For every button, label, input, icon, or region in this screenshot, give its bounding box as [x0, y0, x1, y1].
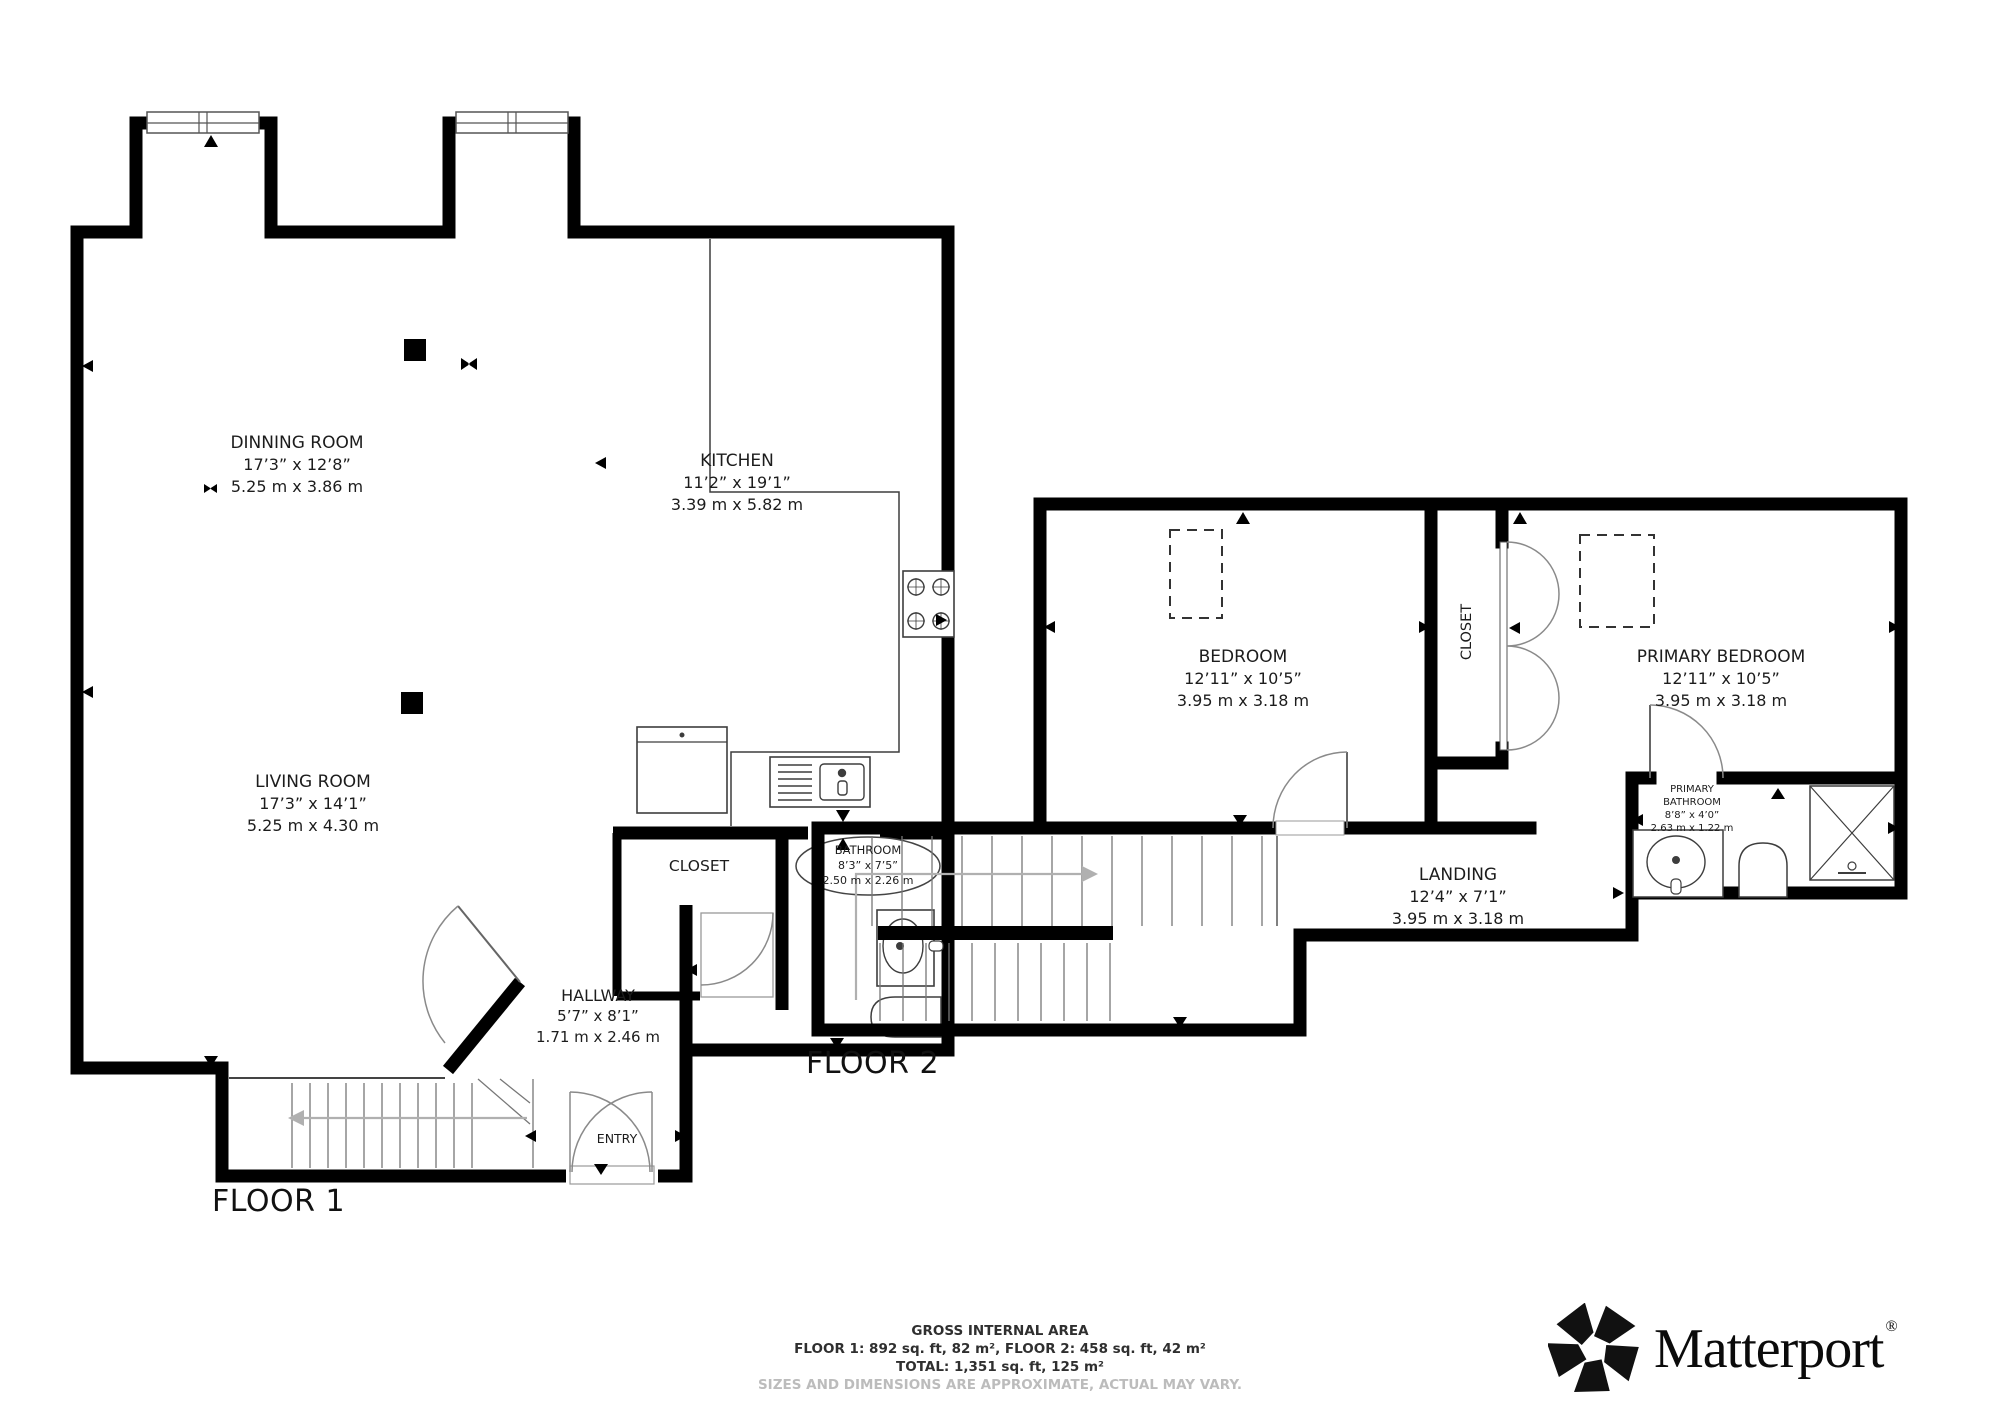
skylight-dashed: [1170, 530, 1222, 618]
camera-marker: [204, 484, 217, 493]
post-icon: [401, 692, 423, 714]
toilet-icon: [1739, 843, 1787, 897]
floor1-title: FLOOR 1: [212, 1184, 345, 1219]
room-label-hallway: HALLWAY 5’7” x 8’1” 1.71 m x 2.46 m: [536, 985, 660, 1048]
gross-internal-area: GROSS INTERNAL AREA FLOOR 1: 892 sq. ft,…: [758, 1322, 1242, 1394]
room-label-closet-floor2: CLOSET: [1459, 604, 1475, 660]
room-label-closet-floor1: CLOSET: [669, 855, 729, 877]
room-label-entry: ENTRY: [597, 1128, 637, 1150]
hallway-door-arc: [423, 906, 520, 1043]
kitchen-sink-icon: [770, 757, 870, 807]
room-label-living-room: LIVING ROOM 17’3” x 14’1” 5.25 m x 4.30 …: [247, 771, 379, 837]
primary-bathroom-door: [1650, 705, 1723, 778]
room-label-dinning-room: DINNING ROOM 17’3” x 12’8” 5.25 m x 3.86…: [230, 432, 363, 498]
closet-bifold-doors: [1500, 542, 1559, 750]
skylight-dashed: [1580, 535, 1654, 627]
footer-title: GROSS INTERNAL AREA: [758, 1322, 1242, 1340]
floor2-plan: [818, 504, 1901, 1030]
stove-icon: [903, 571, 954, 637]
window-bay2: [456, 112, 568, 133]
floor1-stairs: [229, 1078, 533, 1168]
footer-floor-areas: FLOOR 1: 892 sq. ft, 82 m², FLOOR 2: 458…: [758, 1340, 1242, 1358]
camera-marker: [461, 358, 477, 370]
room-label-bathroom: BATHROOM 8’3” x 7’5” 2.50 m x 2.26 m: [823, 843, 914, 888]
fridge-icon: [637, 727, 727, 813]
shower-icon: [1810, 786, 1894, 880]
footer-disclaimer: SIZES AND DIMENSIONS ARE APPROXIMATE, AC…: [758, 1376, 1242, 1394]
stair-rail-wall: [878, 926, 1113, 940]
room-label-primary-bathroom: PRIMARY BATHROOM 8’8” x 4’0” 2.63 m x 1.…: [1651, 783, 1734, 835]
stair-winders: [478, 1079, 533, 1168]
stair-risers: [292, 1083, 472, 1168]
floor2-title: FLOOR 2: [806, 1046, 939, 1081]
matterport-icon: [1548, 1303, 1640, 1395]
stair-direction-arrow: [288, 1110, 527, 1126]
room-label-landing: LANDING 12’4” x 7’1” 3.95 m x 3.18 m: [1392, 864, 1524, 930]
room-label-primary-bedroom: PRIMARY BEDROOM 12’11” x 10’5” 3.95 m x …: [1637, 646, 1806, 712]
window-bay1: [147, 112, 259, 133]
registered-mark: ®: [1885, 1318, 1897, 1336]
floorplan-page: DINNING ROOM 17’3” x 12’8” 5.25 m x 3.86…: [0, 0, 2000, 1403]
floor2-outer-walls: [818, 504, 1901, 1030]
floor2-wall-markers: [1044, 512, 1900, 1028]
bedroom-door: [1273, 752, 1347, 835]
hallway-closet-door: [701, 913, 773, 997]
footer-total-area: TOTAL: 1,351 sq. ft, 125 m²: [758, 1358, 1242, 1376]
room-label-kitchen: KITCHEN 11’2” x 19’1” 3.39 m x 5.82 m: [671, 450, 803, 516]
room-label-bedroom: BEDROOM 12’11” x 10’5” 3.95 m x 3.18 m: [1177, 646, 1309, 712]
bathroom-sink-icon: [877, 910, 943, 986]
matterport-logo: Matterport ®: [1548, 1303, 1896, 1395]
matterport-wordmark: Matterport: [1654, 1317, 1883, 1381]
kitchen-counter: [710, 239, 899, 826]
primary-bathroom-sink-icon: [1633, 830, 1723, 897]
post-icon: [404, 339, 426, 361]
